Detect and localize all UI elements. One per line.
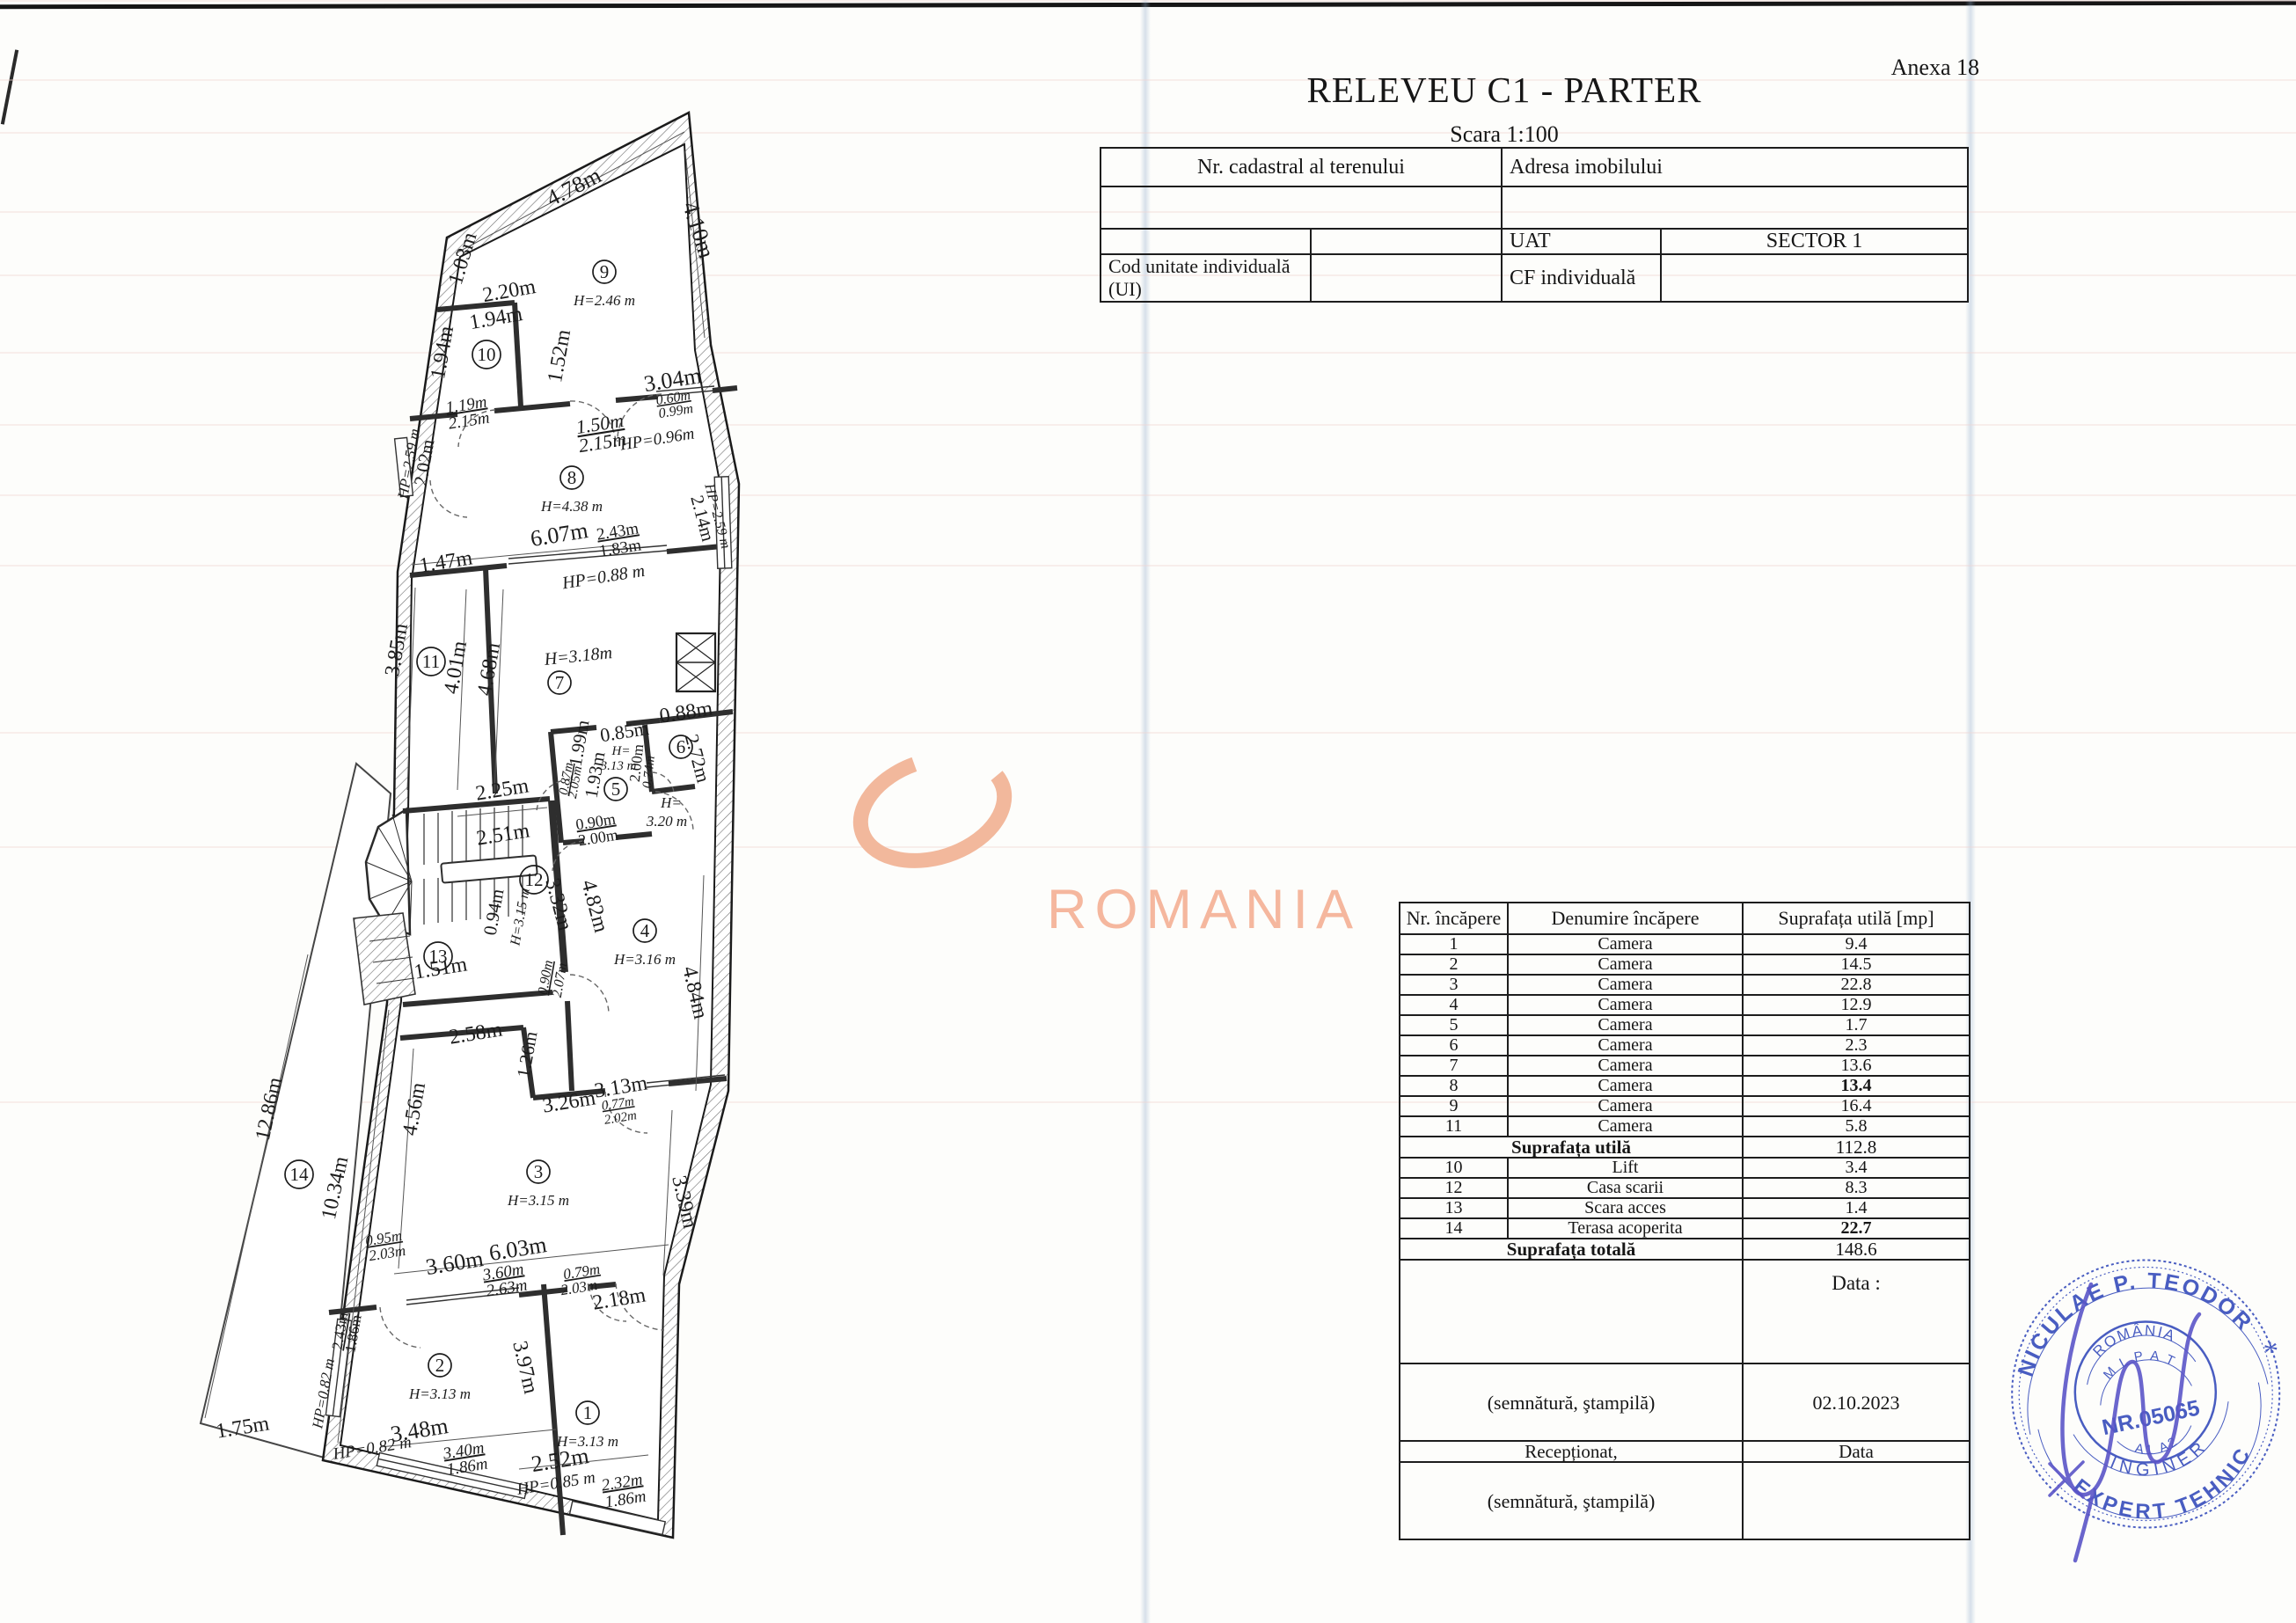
rooms-rows: 1Camera9.42Camera14.53Camera22.84Camera1… <box>1400 934 1970 1137</box>
cell-room-number: 2 <box>1400 954 1508 975</box>
cell-room-name: Camera <box>1508 1035 1743 1056</box>
cell-room-area: 13.4 <box>1743 1076 1970 1096</box>
cell-room-area: 1.4 <box>1743 1198 1970 1218</box>
table-row: 3Camera22.8 <box>1400 975 1970 995</box>
cell-room-number: 5 <box>1400 1015 1508 1035</box>
table-row: 11Camera5.8 <box>1400 1116 1970 1137</box>
total-label: Suprafața totală <box>1400 1239 1743 1260</box>
floor-plan: 4.78m4.10m1.03m2.20m1.94m1.94m1.52m3.04m… <box>0 0 792 1623</box>
dimension-label: H= <box>611 744 631 758</box>
cell-room-number: 1 <box>1400 934 1508 954</box>
received-label: Recepționat, <box>1400 1441 1743 1462</box>
cell-room-name: Lift <box>1508 1158 1743 1178</box>
cell-room-name: Camera <box>1508 1056 1743 1076</box>
cell-room-number: 3 <box>1400 975 1508 995</box>
cell-room-name: Camera <box>1508 1015 1743 1035</box>
room-height-label: H=3.13 m <box>408 1385 471 1402</box>
col-header-suprafata: Suprafața utilă [mp] <box>1743 903 1970 934</box>
cell-room-name: Casa scarii <box>1508 1178 1743 1198</box>
dimension-label: 3.20 m <box>646 813 687 830</box>
cell-nr-cadastral: Nr. cadastral al terenului <box>1100 148 1502 186</box>
table-row: 8Camera13.4 <box>1400 1076 1970 1096</box>
cell-room-number: 4 <box>1400 995 1508 1015</box>
header-table: Nr. cadastral al terenului Adresa imobil… <box>1100 147 1969 303</box>
date-value: 02.10.2023 <box>1743 1363 1970 1441</box>
svg-text:2: 2 <box>435 1355 445 1376</box>
data-label: Data : <box>1743 1260 1970 1363</box>
cell-room-name: Camera <box>1508 1116 1743 1137</box>
cell-room-number: 12 <box>1400 1178 1508 1198</box>
cell-empty <box>1661 254 1968 302</box>
room-height-label: H=3.13 m <box>556 1433 618 1450</box>
cell-room-name: Camera <box>1508 975 1743 995</box>
expert-stamp: NICULAE P. TEODOR EXPERT TEHNIC INGINER … <box>1999 1230 2296 1582</box>
cell-room-number: 13 <box>1400 1198 1508 1218</box>
stamp-asterisk: * <box>2261 1334 2282 1370</box>
cell-empty <box>1502 186 1968 229</box>
cell-room-area: 22.7 <box>1743 1218 1970 1239</box>
cell-room-number: 10 <box>1400 1158 1508 1178</box>
cell-empty <box>1311 254 1502 302</box>
anexa-label: Anexa 18 <box>1795 55 1979 81</box>
cell-room-name: Camera <box>1508 1096 1743 1116</box>
cell-uat-label: UAT <box>1502 229 1661 254</box>
svg-text:5: 5 <box>611 779 621 800</box>
table-row: 4Camera12.9 <box>1400 995 1970 1015</box>
room-height-label: H=2.46 m <box>573 292 635 309</box>
cell-room-area: 13.6 <box>1743 1056 1970 1076</box>
svg-text:7: 7 <box>555 672 565 693</box>
cell-room-name: Camera <box>1508 1076 1743 1096</box>
table-row: 14Terasa acoperita22.7 <box>1400 1218 1970 1239</box>
cell-room-area: 22.8 <box>1743 975 1970 995</box>
table-row: 5Camera1.7 <box>1400 1015 1970 1035</box>
svg-text:6: 6 <box>676 736 686 757</box>
svg-text:1: 1 <box>583 1402 593 1423</box>
document-page: RELEVEU C1 - PARTER Scara 1:100 Anexa 18… <box>0 0 2296 1623</box>
extra-rows: 10Lift3.412Casa scarii8.313Scara acces1.… <box>1400 1158 1970 1239</box>
svg-text:14: 14 <box>290 1164 310 1185</box>
cell-cod-ui: Cod unitate individuală (UI) <box>1100 254 1311 302</box>
cell-room-area: 9.4 <box>1743 934 1970 954</box>
svg-text:10: 10 <box>478 344 496 365</box>
cell-room-name: Terasa acoperita <box>1508 1218 1743 1239</box>
cell-room-area: 5.8 <box>1743 1116 1970 1137</box>
table-row: 9Camera16.4 <box>1400 1096 1970 1116</box>
rooms-table: Nr. încăpere Denumire încăpere Suprafața… <box>1399 902 1971 1540</box>
subtotal-value: 112.8 <box>1743 1137 1970 1158</box>
cell-room-number: 9 <box>1400 1096 1508 1116</box>
cell-room-area: 2.3 <box>1743 1035 1970 1056</box>
cell-adresa: Adresa imobilului <box>1502 148 1968 186</box>
room-height-label: H=4.38 m <box>540 498 603 515</box>
cell-room-area: 12.9 <box>1743 995 1970 1015</box>
table-row: 6Camera2.3 <box>1400 1035 1970 1056</box>
cell-room-name: Camera <box>1508 995 1743 1015</box>
table-row: 12Casa scarii8.3 <box>1400 1178 1970 1198</box>
cell-room-number: 11 <box>1400 1116 1508 1137</box>
col-header-denumire: Denumire încăpere <box>1508 903 1743 934</box>
cell-room-number: 8 <box>1400 1076 1508 1096</box>
cell-room-name: Scara acces <box>1508 1198 1743 1218</box>
svg-text:3: 3 <box>534 1161 544 1182</box>
dimension-label: H= <box>660 794 682 811</box>
cell-empty <box>1100 186 1502 229</box>
lift-shaft <box>676 633 715 691</box>
svg-text:12: 12 <box>525 869 544 890</box>
watermark-text: ROMANIA <box>1047 878 1361 941</box>
cell-room-number: 7 <box>1400 1056 1508 1076</box>
room-height-label: H=3.16 m <box>613 951 676 968</box>
cell-room-name: Camera <box>1508 934 1743 954</box>
svg-text:11: 11 <box>422 651 440 672</box>
cell-room-number: 14 <box>1400 1218 1508 1239</box>
subtotal-label: Suprafața utilă <box>1400 1137 1743 1158</box>
cell-room-area: 14.5 <box>1743 954 1970 975</box>
received-date-label: Data <box>1743 1441 1970 1462</box>
cell-cf: CF individuală <box>1502 254 1661 302</box>
table-row: 2Camera14.5 <box>1400 954 1970 975</box>
room-height-label: H=3.15 m <box>507 1192 569 1209</box>
cell-empty <box>1311 229 1502 254</box>
cell-room-area: 1.7 <box>1743 1015 1970 1035</box>
svg-text:8: 8 <box>567 467 577 488</box>
svg-text:9: 9 <box>600 261 610 282</box>
cell-room-area: 16.4 <box>1743 1096 1970 1116</box>
watermark-swoosh <box>837 728 1033 880</box>
cell-empty <box>1743 1462 1970 1539</box>
signature-label: (semnătură, ştampilă) <box>1400 1363 1743 1441</box>
table-row: 10Lift3.4 <box>1400 1158 1970 1178</box>
cell-uat-value: SECTOR 1 <box>1661 229 1968 254</box>
col-header-nr: Nr. încăpere <box>1400 903 1508 934</box>
cell-room-number: 6 <box>1400 1035 1508 1056</box>
svg-text:13: 13 <box>429 946 448 967</box>
svg-text:4: 4 <box>640 920 650 941</box>
signature-label-2: (semnătură, ştampilă) <box>1400 1462 1743 1539</box>
cell-room-area: 8.3 <box>1743 1178 1970 1198</box>
scale-label: Scara 1:100 <box>1276 121 1733 148</box>
table-row: 1Camera9.4 <box>1400 934 1970 954</box>
cell-empty <box>1100 229 1311 254</box>
total-value: 148.6 <box>1743 1239 1970 1260</box>
cell-room-area: 3.4 <box>1743 1158 1970 1178</box>
table-row: 13Scara acces1.4 <box>1400 1198 1970 1218</box>
cell-empty <box>1400 1260 1743 1363</box>
table-row: 7Camera13.6 <box>1400 1056 1970 1076</box>
page-title: RELEVEU C1 - PARTER <box>1276 69 1733 111</box>
cell-room-name: Camera <box>1508 954 1743 975</box>
dimension-label: 3.13 m <box>600 759 637 773</box>
